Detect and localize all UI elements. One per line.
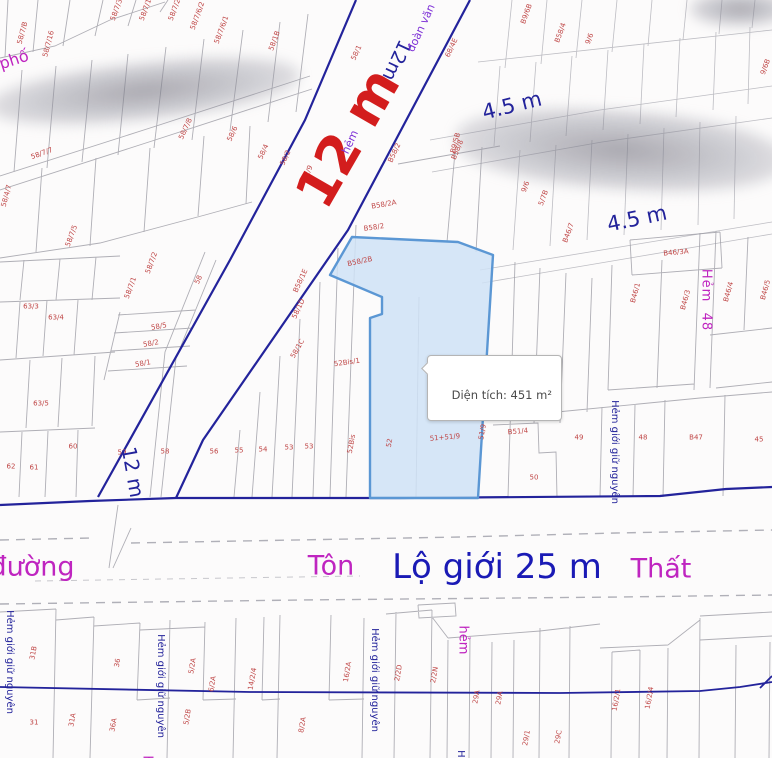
bottom-planning-line — [0, 676, 772, 693]
area-tooltip: Diện tích: 451 m² — [427, 355, 562, 421]
tooltip-text: Diện tích: 451 m² — [452, 388, 552, 402]
dashed-road-edge-lower — [0, 595, 772, 604]
parcel-lines-bottom — [0, 603, 772, 758]
dashed-road-edge-upper — [0, 530, 772, 543]
cadastral-map-canvas[interactable]: 58/7/358/7/158/7/258/7/6/258/7/6/158/7/B… — [0, 0, 772, 758]
dashed-centerline — [35, 576, 360, 581]
parcel-lines-center — [234, 146, 772, 497]
